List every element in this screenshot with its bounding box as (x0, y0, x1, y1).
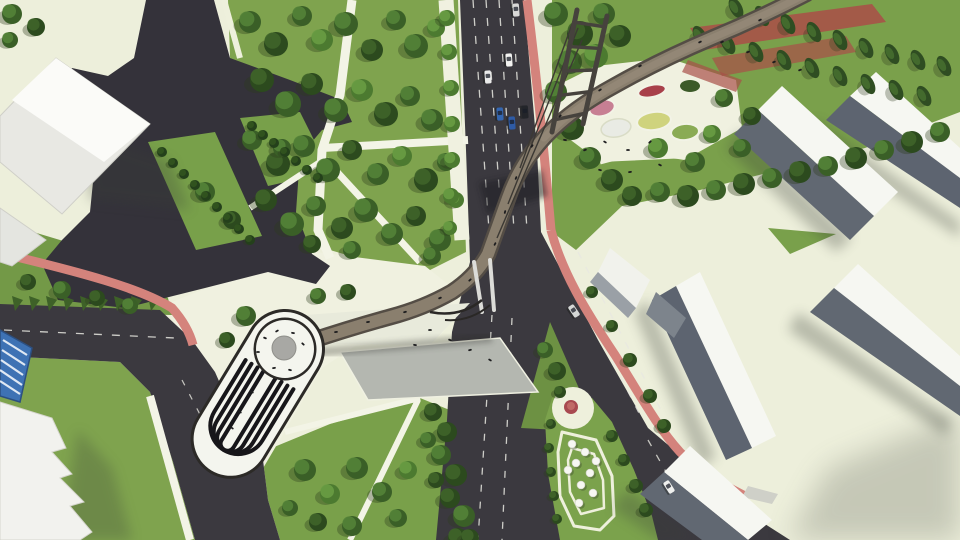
tree-highlight (201, 191, 208, 198)
pylon-rung-4 (570, 47, 600, 49)
car-glass (513, 7, 518, 12)
tree-highlight (255, 189, 270, 204)
tree-highlight (639, 503, 649, 513)
car-glass (522, 109, 527, 114)
tree-highlight (544, 443, 551, 450)
tree-highlight (342, 516, 356, 530)
tree-highlight (601, 169, 616, 184)
tree-highlight (157, 147, 164, 154)
pedestrian (428, 329, 432, 331)
tree-highlight (342, 140, 356, 154)
decorative-sphere (581, 448, 589, 456)
tree-highlight (340, 284, 351, 295)
tree-highlight (27, 18, 39, 30)
tree-highlight (618, 454, 626, 462)
tree-highlight (643, 389, 653, 399)
island-red-shrub-core (567, 402, 575, 410)
bed-shrub (680, 80, 700, 92)
tree-highlight (443, 80, 454, 91)
car (482, 70, 491, 84)
tree-highlight (677, 185, 692, 200)
tree-highlight (733, 139, 745, 151)
tree-highlight (441, 44, 452, 55)
tree-highlight (53, 281, 65, 293)
tree-highlight (437, 422, 451, 436)
tree-highlight (306, 196, 320, 210)
car (510, 3, 519, 17)
tree-highlight (250, 68, 266, 84)
tree-highlight (609, 25, 624, 40)
architectural-render-viewport (0, 0, 960, 540)
tree-highlight (453, 505, 468, 520)
tree-highlight (743, 107, 755, 119)
decorative-sphere (586, 469, 594, 477)
render-canvas (0, 0, 960, 540)
tree-highlight (685, 152, 699, 166)
tree-highlight (406, 206, 420, 220)
tree-highlight (443, 221, 453, 231)
tree-highlight (789, 161, 804, 176)
tree-highlight (389, 509, 401, 521)
tree-highlight (311, 29, 326, 44)
tree-highlight (552, 514, 559, 521)
tree-highlight (309, 513, 321, 525)
tree-highlight (223, 213, 230, 220)
tree-highlight (648, 138, 662, 152)
decorative-sphere (592, 457, 600, 465)
pedestrian (256, 351, 260, 353)
tree-highlight (190, 180, 197, 187)
tree-highlight (280, 212, 296, 228)
tree-highlight (400, 86, 414, 100)
pylon-rung-3 (565, 70, 596, 71)
tree-highlight (544, 2, 560, 18)
tree-highlight (657, 419, 667, 429)
tree-highlight (762, 168, 776, 182)
car (506, 116, 515, 130)
tree-highlight (372, 482, 386, 496)
tree-highlight (239, 11, 254, 26)
tree-highlight (930, 122, 944, 136)
tree-highlight (586, 286, 594, 294)
tree-highlight (386, 10, 400, 24)
tree-highlight (444, 152, 455, 163)
tree-highlight (549, 491, 556, 498)
tree-highlight (381, 223, 396, 238)
tree-highlight (423, 247, 435, 259)
tree-highlight (361, 39, 376, 54)
tree-highlight (294, 459, 309, 474)
tree-highlight (301, 73, 316, 88)
tree-highlight (546, 419, 553, 426)
decorative-sphere (564, 466, 572, 474)
loop-core (272, 336, 296, 360)
tree-highlight (440, 488, 454, 502)
car (494, 107, 503, 121)
tree-highlight (245, 235, 252, 242)
tree-highlight (122, 298, 133, 309)
tree-highlight (537, 342, 548, 353)
car (503, 53, 512, 67)
tree-highlight (703, 125, 715, 137)
tree-highlight (20, 274, 31, 285)
tree-highlight (548, 362, 560, 374)
tree-highlight (399, 461, 411, 473)
tree-highlight (629, 479, 639, 489)
tree-highlight (414, 168, 430, 184)
tree-highlight (367, 163, 382, 178)
tree-highlight (439, 10, 450, 21)
tree-highlight (443, 188, 454, 199)
car-glass (497, 111, 502, 116)
tree-highlight (346, 457, 361, 472)
decorative-sphere (572, 459, 580, 467)
tree-highlight (212, 202, 219, 209)
tree-highlight (623, 353, 633, 363)
tree-highlight (706, 180, 720, 194)
tree-highlight (293, 135, 308, 150)
tree-highlight (236, 306, 250, 320)
tree-highlight (2, 32, 13, 43)
car-glass (506, 57, 511, 62)
tree-highlight (733, 173, 748, 188)
tree-highlight (404, 34, 420, 50)
tree-highlight (310, 288, 321, 299)
tree-highlight (282, 500, 293, 511)
tree-highlight (264, 32, 280, 48)
tree-highlight (276, 92, 294, 110)
tree-highlight (622, 186, 636, 200)
tree-highlight (424, 403, 436, 415)
tree-highlight (219, 332, 230, 343)
tree-highlight (2, 4, 16, 18)
tree-highlight (316, 158, 332, 174)
tree-highlight (715, 89, 727, 101)
tree-highlight (292, 6, 306, 20)
tree-highlight (313, 173, 320, 180)
tree-highlight (392, 146, 406, 160)
tree-highlight (546, 467, 553, 474)
tree-highlight (242, 130, 256, 144)
tree-highlight (420, 432, 431, 443)
tree-highlight (303, 235, 315, 247)
tree-highlight (291, 156, 298, 163)
ramp-loop (254, 318, 317, 381)
tree-highlight (179, 169, 186, 176)
tree-highlight (579, 147, 594, 162)
tree-highlight (334, 12, 350, 28)
tree-highlight (89, 290, 100, 301)
tree-highlight (354, 198, 370, 214)
car (519, 105, 528, 119)
tree-highlight (845, 147, 860, 162)
tree-highlight (331, 217, 346, 232)
tree-highlight (650, 182, 664, 196)
decorative-sphere (589, 489, 597, 497)
tree-highlight (320, 484, 334, 498)
tree-highlight (874, 140, 888, 154)
tree-highlight (901, 131, 916, 146)
tree-highlight (554, 386, 562, 394)
tree-highlight (421, 109, 436, 124)
decorative-sphere (568, 440, 576, 448)
pedestrian (626, 149, 630, 151)
tree-highlight (324, 98, 340, 114)
decorative-sphere (577, 481, 585, 489)
tree-highlight (445, 464, 460, 479)
tree-highlight (444, 116, 455, 127)
tree-highlight (280, 147, 287, 154)
tree-highlight (258, 130, 265, 137)
tree-highlight (818, 156, 832, 170)
tree-highlight (247, 121, 254, 128)
tree-highlight (606, 430, 614, 438)
tree-highlight (234, 224, 241, 231)
tree-highlight (302, 165, 309, 172)
tree-highlight (269, 138, 276, 145)
tree-highlight (351, 79, 366, 94)
tree-highlight (168, 158, 175, 165)
tree-highlight (606, 320, 614, 328)
decorative-sphere (575, 499, 583, 507)
tree-highlight (428, 472, 439, 483)
tree-highlight (374, 102, 390, 118)
tree-highlight (343, 241, 355, 253)
tree-highlight (431, 445, 445, 459)
car-glass (485, 74, 490, 79)
car-glass (509, 120, 514, 125)
